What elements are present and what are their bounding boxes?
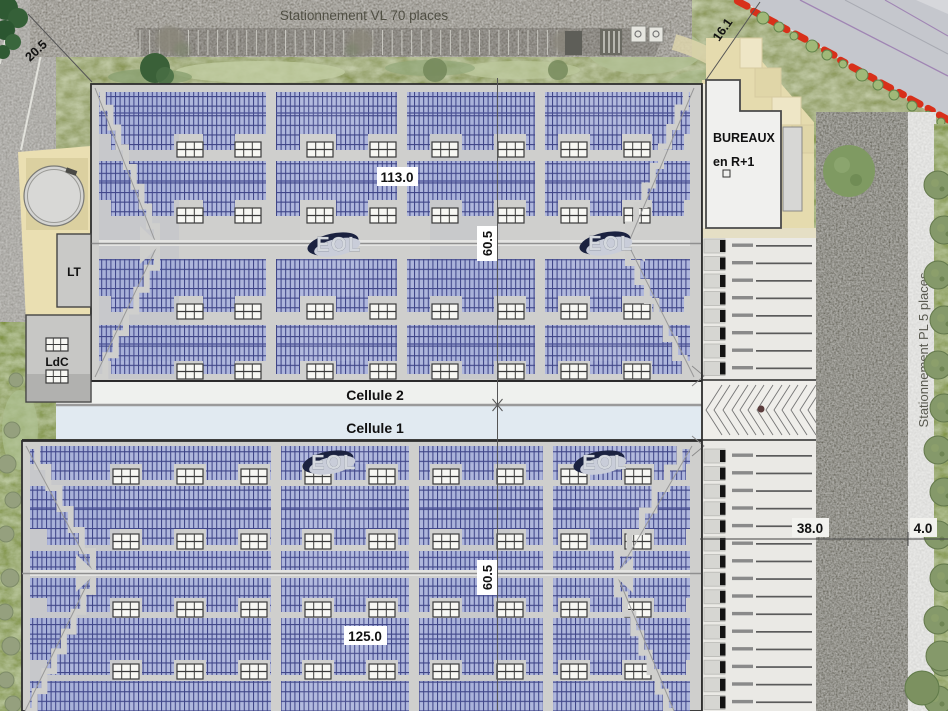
svg-text:Stationnement PL 5 places: Stationnement PL 5 places [916,272,931,427]
svg-text:Stationnement VL 70 places: Stationnement VL 70 places [280,8,449,23]
svg-text:EOL: EOL [316,234,362,256]
svg-text:38.0: 38.0 [797,521,823,536]
svg-text:BUREAUX: BUREAUX [713,131,775,145]
svg-text:Cellule 1: Cellule 1 [346,420,404,436]
svg-text:EOL: EOL [311,452,357,474]
svg-text:EOL: EOL [582,452,628,474]
svg-text:60.5: 60.5 [480,231,495,256]
svg-text:60.5: 60.5 [480,565,495,590]
svg-text:113.0: 113.0 [380,170,413,185]
svg-text:Cellule 2: Cellule 2 [346,387,404,403]
svg-text:LdC: LdC [45,355,69,369]
svg-text:LT: LT [67,265,81,279]
svg-text:4.0: 4.0 [914,521,933,536]
svg-text:EOL: EOL [588,233,634,255]
svg-text:en R+1: en R+1 [713,155,754,169]
svg-text:125.0: 125.0 [348,629,382,644]
